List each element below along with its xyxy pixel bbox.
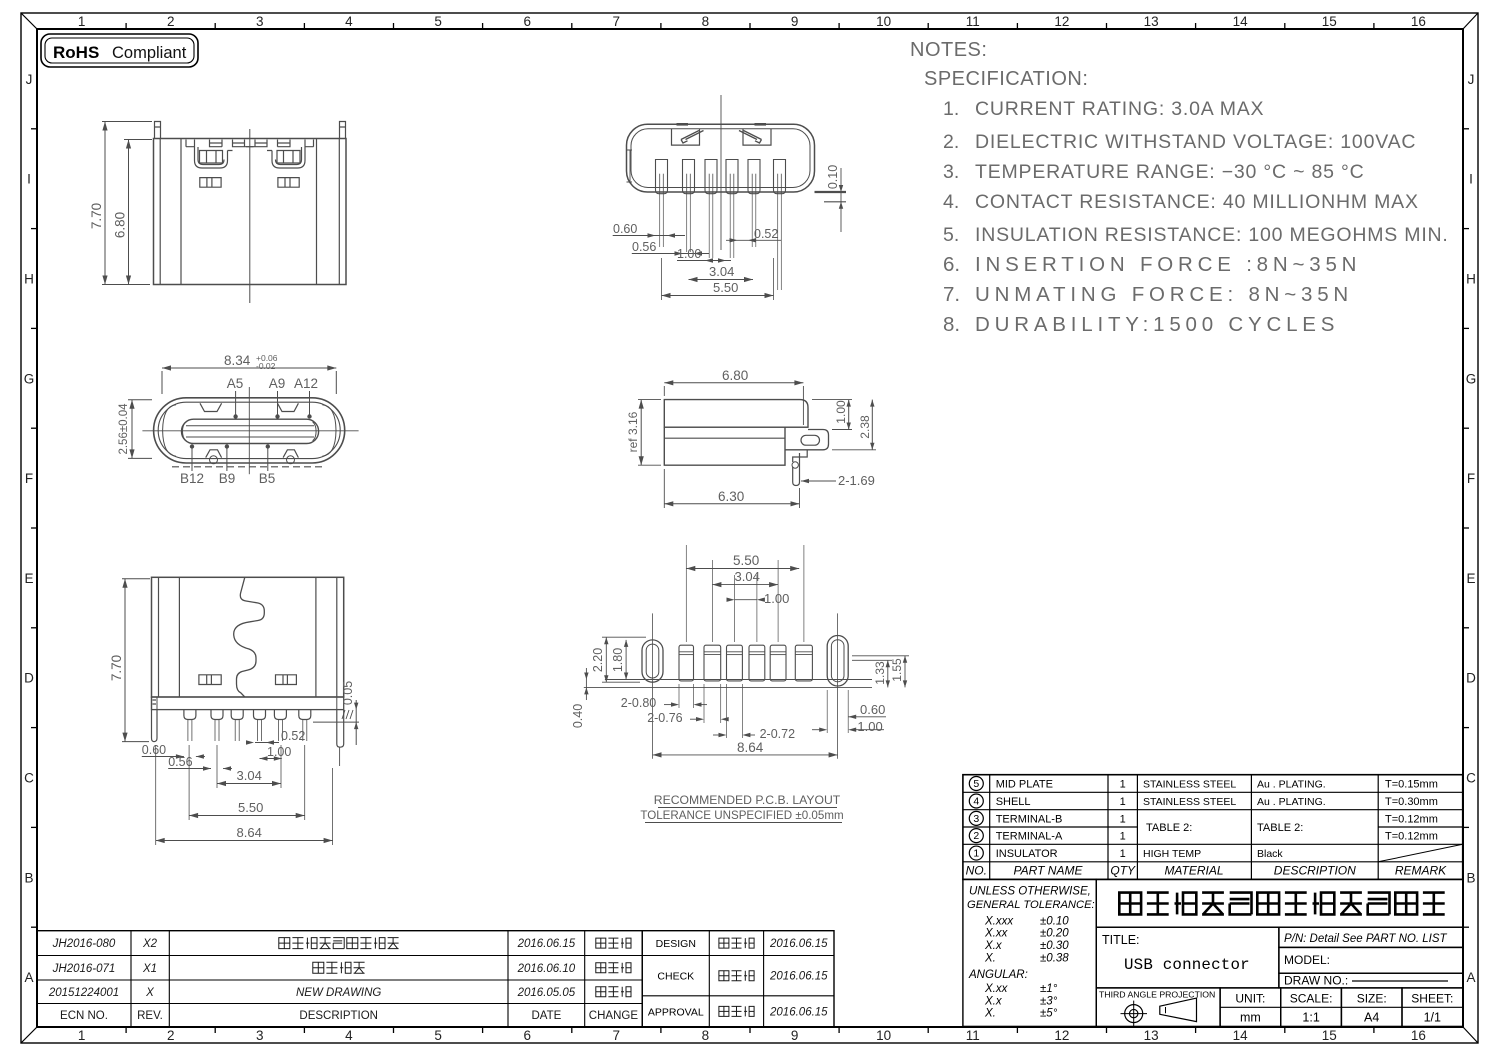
svg-text:X.x: X.x [984,940,1003,952]
svg-text:DESIGN: DESIGN [656,938,696,950]
svg-text:1.00: 1.00 [677,247,701,261]
svg-text:6.30: 6.30 [718,489,744,504]
svg-text:6: 6 [523,1028,531,1043]
svg-text:2-0.76: 2-0.76 [647,711,682,725]
svg-text:TABLE 2:: TABLE 2: [1146,822,1192,834]
svg-text:1.: 1. [943,98,959,120]
svg-text:0.60: 0.60 [860,702,885,717]
svg-text:2-0.80: 2-0.80 [621,696,656,710]
svg-text:RECOMMENDED P.C.B. LAYOUT: RECOMMENDED P.C.B. LAYOUT [654,793,841,807]
svg-text:ref 3.16: ref 3.16 [626,411,640,452]
svg-text:8.64: 8.64 [237,825,262,840]
svg-text:B: B [24,870,33,885]
svg-text:C: C [1466,771,1476,786]
svg-text:6.80: 6.80 [113,212,128,238]
svg-text:3: 3 [973,813,979,825]
svg-text:X: X [145,987,155,999]
svg-text:B: B [1466,870,1475,885]
svg-text:1: 1 [1120,796,1126,808]
svg-text:E: E [24,571,33,586]
svg-text:±0.20: ±0.20 [1040,928,1069,940]
svg-text:11: 11 [966,1028,980,1043]
svg-text:H: H [1466,272,1476,287]
svg-text:7.70: 7.70 [109,655,124,681]
svg-text:15: 15 [1322,14,1337,29]
svg-text:X.xx: X.xx [984,928,1009,940]
svg-text:0.40: 0.40 [571,704,585,728]
svg-text:MID PLATE: MID PLATE [996,779,1053,791]
svg-text:A12: A12 [294,376,318,391]
svg-text:6.: 6. [943,253,960,276]
svg-text:MATERIAL: MATERIAL [1164,864,1223,878]
svg-text:±3°: ±3° [1040,995,1058,1007]
svg-text:1: 1 [1120,831,1126,843]
svg-text:2.38: 2.38 [858,415,872,439]
svg-text:UNLESS OTHERWISE,: UNLESS OTHERWISE, [969,886,1091,898]
svg-text:0.52: 0.52 [281,729,305,743]
svg-text:5: 5 [973,778,979,790]
svg-text:CHECK: CHECK [657,971,694,983]
svg-text:J: J [26,72,33,87]
svg-text:1.00: 1.00 [267,745,291,759]
svg-text:USB connector: USB connector [1124,956,1250,974]
svg-text:RoHS: RoHS [53,43,99,62]
svg-text:STAINLESS STEEL: STAINLESS STEEL [1143,779,1236,791]
svg-text:5: 5 [434,14,442,29]
svg-text:7.: 7. [943,283,960,306]
svg-text:8.64: 8.64 [737,740,764,755]
svg-text:JH2016-080: JH2016-080 [52,938,116,950]
svg-text:4: 4 [973,796,979,808]
svg-text:SIZE:: SIZE: [1357,992,1387,1006]
svg-text:Au . PLATING.: Au . PLATING. [1257,796,1326,808]
svg-text:2016.06.15: 2016.06.15 [769,938,828,950]
svg-text:C: C [24,771,34,786]
svg-text:DESCRIPTION: DESCRIPTION [1274,864,1356,878]
svg-text:T=0.30mm: T=0.30mm [1385,796,1438,808]
svg-text:2: 2 [167,14,175,29]
svg-text:5: 5 [434,1028,442,1043]
svg-text:GENERAL TOLERANCE:: GENERAL TOLERANCE: [967,899,1095,911]
svg-text:PART NAME: PART NAME [1014,864,1084,878]
svg-text:SHELL: SHELL [996,796,1031,808]
svg-text:TERMINAL-B: TERMINAL-B [996,813,1063,825]
svg-text:3: 3 [256,14,264,29]
svg-text:DURABILITY:1500 CYCLES: DURABILITY:1500 CYCLES [975,313,1339,336]
svg-text:0.56: 0.56 [632,240,656,254]
svg-text:UNIT:: UNIT: [1235,992,1265,1006]
svg-text:8: 8 [702,1028,710,1043]
svg-text:DIELECTRIC WITHSTAND VOLTAGE: DIELECTRIC WITHSTAND VOLTAGE: 100VAC [975,131,1416,153]
svg-text:7: 7 [613,1028,621,1043]
svg-text:5.50: 5.50 [238,800,263,815]
svg-text:B12: B12 [180,471,204,486]
svg-text:11: 11 [966,14,980,29]
svg-text:±0.38: ±0.38 [1040,952,1069,964]
svg-text:6.80: 6.80 [722,368,748,383]
svg-text:1.55: 1.55 [890,658,904,682]
svg-text:F: F [25,471,33,486]
svg-text:TABLE 2:: TABLE 2: [1257,822,1303,834]
svg-text:ANGULAR:: ANGULAR: [968,969,1028,981]
svg-text:10: 10 [876,1028,891,1043]
svg-text:CURRENT RATING: 3.0A MAX: CURRENT RATING: 3.0A MAX [975,98,1264,120]
svg-text:JH2016-071: JH2016-071 [52,963,116,975]
svg-text:SCALE:: SCALE: [1290,992,1333,1006]
svg-text:A: A [24,970,33,985]
svg-text:8: 8 [702,14,710,29]
svg-text:D: D [24,671,34,686]
svg-text:±0.10: ±0.10 [1040,916,1069,928]
svg-text:CHANGE: CHANGE [589,1010,639,1022]
svg-text:B9: B9 [219,471,236,486]
svg-text:Compliant: Compliant [112,44,187,62]
svg-text:QTY: QTY [1110,864,1136,878]
svg-text:F: F [1467,471,1475,486]
svg-text:A4: A4 [1364,1011,1379,1025]
svg-text:X.xx: X.xx [984,983,1009,995]
svg-text:2: 2 [167,1028,175,1043]
svg-text:APPROVAL: APPROVAL [648,1006,704,1018]
svg-text:DESCRIPTION: DESCRIPTION [299,1010,378,1022]
svg-text:INSULATION RESISTANCE: 100: INSULATION RESISTANCE: 100 MEGOHMS MIN. [975,224,1449,246]
svg-text:STAINLESS STEEL: STAINLESS STEEL [1143,796,1236,808]
svg-text:T=0.12mm: T=0.12mm [1385,831,1438,843]
svg-text:±0.30: ±0.30 [1040,940,1069,952]
svg-text:2.: 2. [943,131,959,153]
svg-text:CONTACT RESISTANCE: 40 MILL: CONTACT RESISTANCE: 40 MILLIONHM MAX [975,191,1419,213]
svg-text:X2: X2 [142,938,158,950]
svg-text:X.xxx: X.xxx [984,916,1014,928]
svg-text:8.34: 8.34 [224,353,251,368]
svg-text:REMARK: REMARK [1395,864,1447,878]
svg-text:3.04: 3.04 [237,768,262,783]
svg-text:0.10: 0.10 [826,165,840,189]
svg-text:MODEL:: MODEL: [1284,953,1330,967]
svg-text:X1: X1 [142,963,157,975]
svg-text:3.04: 3.04 [735,569,760,584]
svg-text:13: 13 [1144,1028,1159,1043]
svg-text:A: A [1466,970,1475,985]
svg-text:10: 10 [876,14,891,29]
svg-text:T=0.15mm: T=0.15mm [1385,779,1438,791]
svg-text:X.x: X.x [984,995,1003,1007]
svg-text:INSULATOR: INSULATOR [996,848,1058,860]
svg-text:-0.02: -0.02 [256,361,276,371]
svg-text:4.: 4. [943,191,959,213]
svg-text:9: 9 [791,14,799,29]
svg-text:A9: A9 [269,376,286,391]
svg-text:12: 12 [1054,1028,1069,1043]
svg-text:B5: B5 [259,471,276,486]
svg-text:ECN NO.: ECN NO. [60,1010,108,1022]
svg-text:5.50: 5.50 [733,553,759,568]
svg-text:±5°: ±5° [1040,1007,1058,1019]
svg-text:2016.06.15: 2016.06.15 [769,971,828,983]
svg-text:A5: A5 [227,376,244,391]
svg-text:3: 3 [256,1028,264,1043]
svg-text:I: I [1469,172,1473,187]
svg-text:2: 2 [973,830,979,842]
svg-text:0.60: 0.60 [142,743,166,757]
svg-text:1.33: 1.33 [873,661,887,685]
svg-text:X.: X. [984,952,996,964]
svg-text:G: G [24,371,35,386]
svg-text:2016.06.15: 2016.06.15 [769,1006,828,1018]
svg-text:2016.06.10: 2016.06.10 [517,963,576,975]
svg-text:DATE: DATE [531,1010,561,1022]
svg-text:13: 13 [1144,14,1159,29]
svg-text:HIGH TEMP: HIGH TEMP [1143,848,1201,860]
svg-text:1:1: 1:1 [1302,1011,1319,1025]
svg-text:7.70: 7.70 [89,203,104,229]
svg-text:2.20: 2.20 [591,648,605,672]
svg-text:4: 4 [345,14,353,29]
svg-text:Au . PLATING.: Au . PLATING. [1257,779,1326,791]
svg-text:1: 1 [1120,779,1126,791]
svg-text:NOTES:: NOTES: [910,39,987,61]
svg-text:20151224001: 20151224001 [48,987,119,999]
svg-text:3.04: 3.04 [709,264,734,279]
svg-text:TOLERANCE UNSPECIFIED ±0.05m: TOLERANCE UNSPECIFIED ±0.05mm [640,809,843,822]
svg-text:mm: mm [1240,1011,1261,1025]
svg-text:E: E [1466,571,1475,586]
svg-text:2-1.69: 2-1.69 [838,473,875,488]
svg-text:0.60: 0.60 [613,222,637,236]
svg-text:2-0.72: 2-0.72 [760,727,795,741]
svg-text:I: I [27,172,31,187]
svg-text:2016.06.15: 2016.06.15 [517,938,576,950]
svg-text:TITLE:: TITLE: [1102,933,1140,947]
svg-text:J: J [1468,72,1475,87]
svg-text:DRAW NO.:: DRAW NO.: [1284,974,1348,988]
svg-text:4: 4 [345,1028,353,1043]
svg-text:1: 1 [78,14,86,29]
svg-text:G: G [1466,371,1477,386]
svg-text:1: 1 [1120,813,1126,825]
svg-text:TERMINAL-A: TERMINAL-A [996,831,1063,843]
svg-text:P/N: Detail See PART NO. L: P/N: Detail See PART NO. LIST [1284,933,1448,945]
svg-text:REV.: REV. [137,1010,163,1022]
svg-text:D: D [1466,671,1476,686]
svg-text:1.00: 1.00 [834,400,848,424]
svg-text:6: 6 [523,14,531,29]
svg-text:THIRD ANGLE PROJECTION: THIRD ANGLE PROJECTION [1099,990,1215,1000]
svg-text:16: 16 [1411,14,1426,29]
svg-text:1: 1 [78,1028,86,1043]
svg-text:SHEET:: SHEET: [1411,992,1453,1006]
svg-text:±1°: ±1° [1040,983,1058,995]
svg-text:7: 7 [613,14,621,29]
svg-text:1/1: 1/1 [1424,1011,1441,1025]
svg-text:NO.: NO. [966,864,987,878]
svg-text:TEMPERATURE RANGE: −30 °C: TEMPERATURE RANGE: −30 °C ~ 85 °C [975,161,1364,183]
svg-text:1.00: 1.00 [764,591,789,606]
svg-text:NEW DRAWING: NEW DRAWING [296,987,381,999]
svg-text:1: 1 [973,848,979,860]
svg-text:H: H [24,272,34,287]
svg-text:T=0.12mm: T=0.12mm [1385,813,1438,825]
svg-text:2016.05.05: 2016.05.05 [517,987,576,999]
svg-text:SPECIFICATION:: SPECIFICATION: [924,68,1088,90]
svg-text:5.50: 5.50 [713,280,738,295]
svg-text:12: 12 [1054,14,1069,29]
svg-text:16: 16 [1411,1028,1426,1043]
svg-text:0.05: 0.05 [341,681,355,705]
svg-text:1.80: 1.80 [611,648,625,672]
svg-text:INSERTION FORCE :8N~35N: INSERTION FORCE :8N~35N [975,253,1361,276]
svg-text:0.52: 0.52 [754,227,778,241]
svg-text:14: 14 [1233,14,1249,29]
svg-text:9: 9 [791,1028,799,1043]
svg-text:1: 1 [1120,848,1126,860]
svg-text:UNMATING FORCE: 8N~35N: UNMATING FORCE: 8N~35N [975,283,1353,306]
svg-text:15: 15 [1322,1028,1337,1043]
svg-text:3.: 3. [943,161,959,183]
svg-text:14: 14 [1233,1028,1249,1043]
svg-text:Black: Black [1257,848,1283,860]
svg-text:2.56±0.04: 2.56±0.04 [118,403,130,455]
svg-text:X.: X. [984,1007,996,1019]
svg-text:1.00: 1.00 [857,719,882,734]
svg-text:5.: 5. [943,224,959,246]
svg-text:8.: 8. [943,313,960,336]
